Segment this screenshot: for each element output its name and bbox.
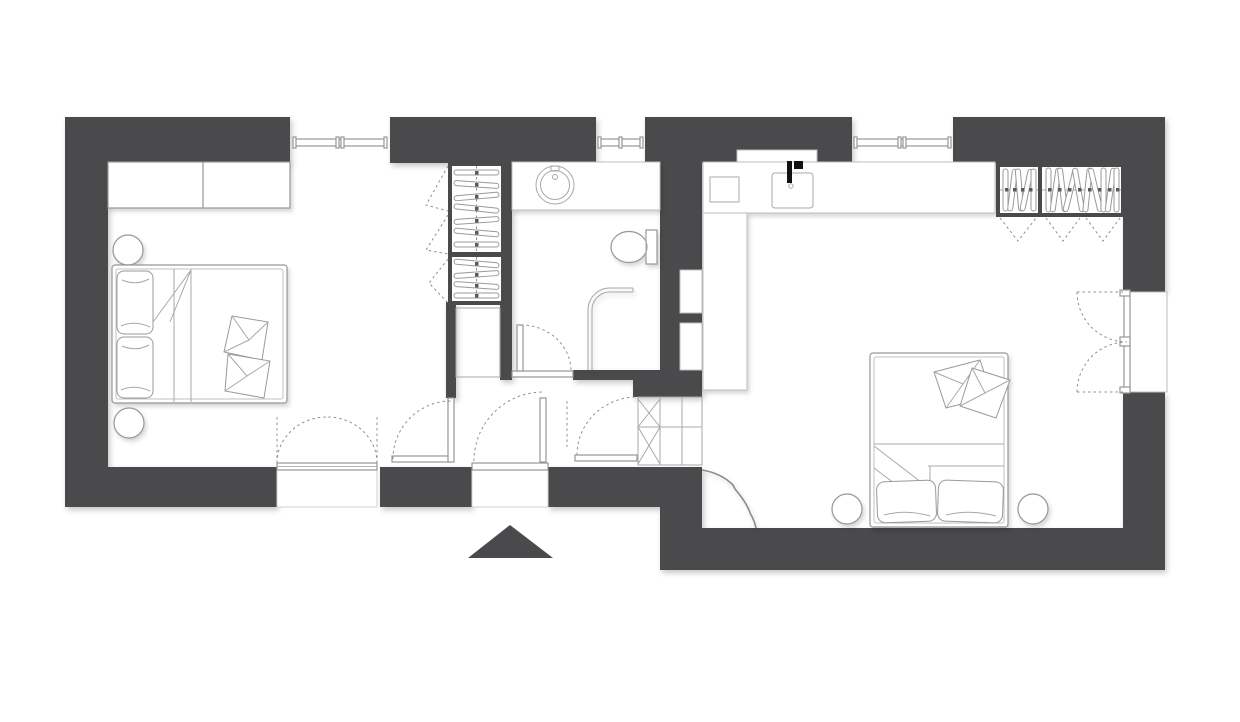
hall-wardrobe [426, 162, 505, 305]
wall-niche [680, 323, 702, 370]
french-door-bedroom-right [1077, 290, 1167, 393]
pillow [117, 271, 153, 334]
dresser [108, 162, 290, 208]
window-bathroom [598, 137, 643, 148]
nightstand [113, 235, 143, 265]
bathroom-fixtures [512, 162, 660, 370]
wall-segment [1123, 117, 1165, 292]
entrance-arrow-icon [468, 525, 553, 558]
wall-segment [660, 528, 1165, 570]
toilet [611, 230, 657, 264]
cushion [225, 354, 270, 398]
wall-segment [446, 302, 456, 398]
entrance-door [472, 392, 548, 507]
pillow [117, 337, 153, 398]
wall-segment [390, 117, 596, 163]
wall-segment [633, 370, 702, 397]
wall-niche [680, 270, 702, 313]
floor-plan-canvas [0, 0, 1240, 722]
winder-stairs [638, 397, 702, 465]
bedroom-right-furniture [832, 353, 1048, 527]
double-bed [112, 265, 287, 403]
wall-segment [573, 370, 633, 380]
wall-segment [1123, 392, 1165, 570]
nightstand [114, 408, 144, 438]
hall-storage-niche [456, 308, 500, 377]
cushion [224, 316, 268, 360]
floor-plan-drawing [0, 0, 1240, 722]
window-bedroom-right [854, 137, 951, 148]
nightstand [1018, 494, 1048, 524]
pillow [876, 480, 936, 523]
hanger-wardrobe [996, 163, 1125, 241]
kitchen-counter-side [703, 213, 747, 390]
washbasin-counter [512, 162, 660, 210]
wall-segment [65, 117, 108, 507]
kitchen-faucet [787, 161, 792, 183]
french-door-bedroom-left [277, 417, 377, 507]
shower-screen [588, 288, 633, 370]
pillow [937, 480, 1003, 523]
curtain-arc [702, 470, 756, 528]
stair-door [567, 397, 637, 461]
folding-door-symbol [426, 166, 448, 303]
kitchen-wall-recess [737, 150, 817, 162]
folding-door-symbol [1000, 218, 1120, 241]
nightstand [832, 494, 862, 524]
door-hall-bedroom [392, 398, 454, 462]
bedroom-left-furniture [108, 162, 290, 438]
window-bedroom-left [293, 137, 387, 148]
kitchen-counter-top [703, 162, 995, 213]
wall-segment [65, 467, 277, 507]
double-bed [870, 353, 1010, 527]
bathroom-door [512, 325, 573, 377]
wall-segment [380, 467, 472, 507]
